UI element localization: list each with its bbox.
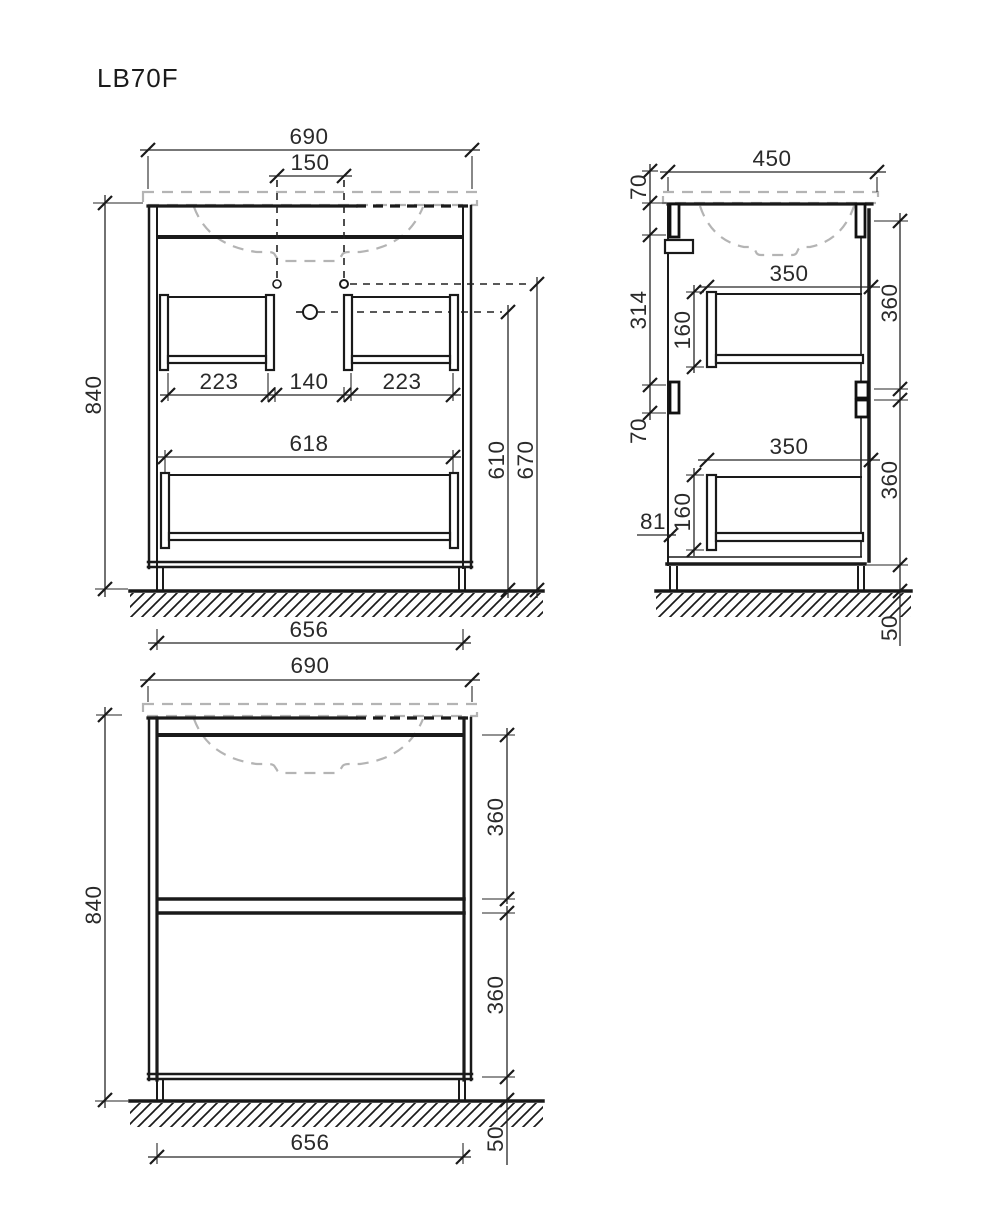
drain-hole [303, 305, 317, 319]
dim-base-width: 656 [289, 617, 328, 642]
cabinet-carcass [667, 204, 872, 565]
basin-ghost-outline [194, 719, 423, 773]
floor [130, 1101, 543, 1127]
vanity-dimension-drawing: LB70F [0, 0, 1000, 1225]
lower-drawer-profile [707, 475, 863, 550]
rail-sections [665, 204, 868, 417]
dim-upper-drawer-height: 360 [483, 797, 508, 836]
dim-leg-height: 50 [877, 615, 902, 641]
faucet-hole-right [340, 280, 348, 288]
drawing-title: LB70F [97, 63, 179, 93]
dim-lower-drawer-depth: 350 [769, 434, 808, 459]
dim-basin-overhang: 70 [626, 174, 651, 200]
faucet-hole-left [273, 280, 281, 288]
dim-upper-drawer-front: 160 [670, 310, 695, 349]
dim-lower-drawer-front: 160 [670, 492, 695, 531]
mounting-bracket [665, 240, 693, 253]
dim-drawer-right-width: 223 [382, 369, 421, 394]
dim-faucet-spacing: 150 [290, 150, 329, 175]
dim-center-gap: 140 [289, 369, 328, 394]
basin-ghost-outline [700, 206, 854, 255]
faucet-centerlines [273, 180, 531, 319]
dim-overall-depth: 450 [752, 146, 791, 171]
upper-right-drawer-open [344, 295, 458, 370]
dim-upper-drawer-zone: 360 [877, 283, 902, 322]
front-open-view: 690 150 840 223 140 223 618 610 670 656 [81, 124, 544, 650]
countertop-ghost [143, 704, 477, 716]
upper-drawer-profile [707, 292, 863, 367]
countertop-ghost [143, 192, 477, 205]
legs [670, 567, 864, 590]
dim-bottom-drawer-width: 618 [289, 431, 328, 456]
dimension-lines [105, 680, 507, 1165]
lower-drawer-open [161, 473, 458, 548]
dim-lower-drawer-zone: 360 [877, 460, 902, 499]
dim-mid-gap: 70 [626, 418, 651, 444]
floor [130, 591, 543, 617]
dimension-ticks [98, 673, 514, 1164]
upper-left-drawer-open [160, 295, 274, 370]
dim-leg-height: 50 [483, 1126, 508, 1152]
dim-overall-width: 690 [290, 653, 329, 678]
basin-ghost-outline [194, 207, 423, 261]
side-view: 450 70 314 160 350 360 70 350 160 81 360… [626, 146, 911, 646]
dim-drain-hole-height: 610 [484, 440, 509, 479]
dim-lower-drawer-height: 360 [483, 975, 508, 1014]
countertop-ghost [663, 192, 878, 203]
dim-upper-drawer-depth: 350 [769, 261, 808, 286]
dim-overall-height: 840 [81, 885, 106, 924]
front-closed-view: 690 840 360 360 656 50 [81, 653, 543, 1165]
dim-base-width: 656 [290, 1130, 329, 1155]
dim-drawer-left-width: 223 [199, 369, 238, 394]
floor [656, 591, 911, 617]
dim-overall-height: 840 [81, 375, 106, 414]
dim-overall-width: 690 [289, 124, 328, 149]
technical-drawing-page: LB70F [0, 0, 1000, 1225]
legs [157, 568, 465, 590]
dimension-ticks [98, 143, 544, 650]
legs [157, 1080, 465, 1100]
dim-drawer-bottom-offset: 81 [640, 509, 666, 534]
dim-upper-section-height: 314 [626, 290, 651, 329]
dim-faucet-hole-height: 670 [513, 440, 538, 479]
